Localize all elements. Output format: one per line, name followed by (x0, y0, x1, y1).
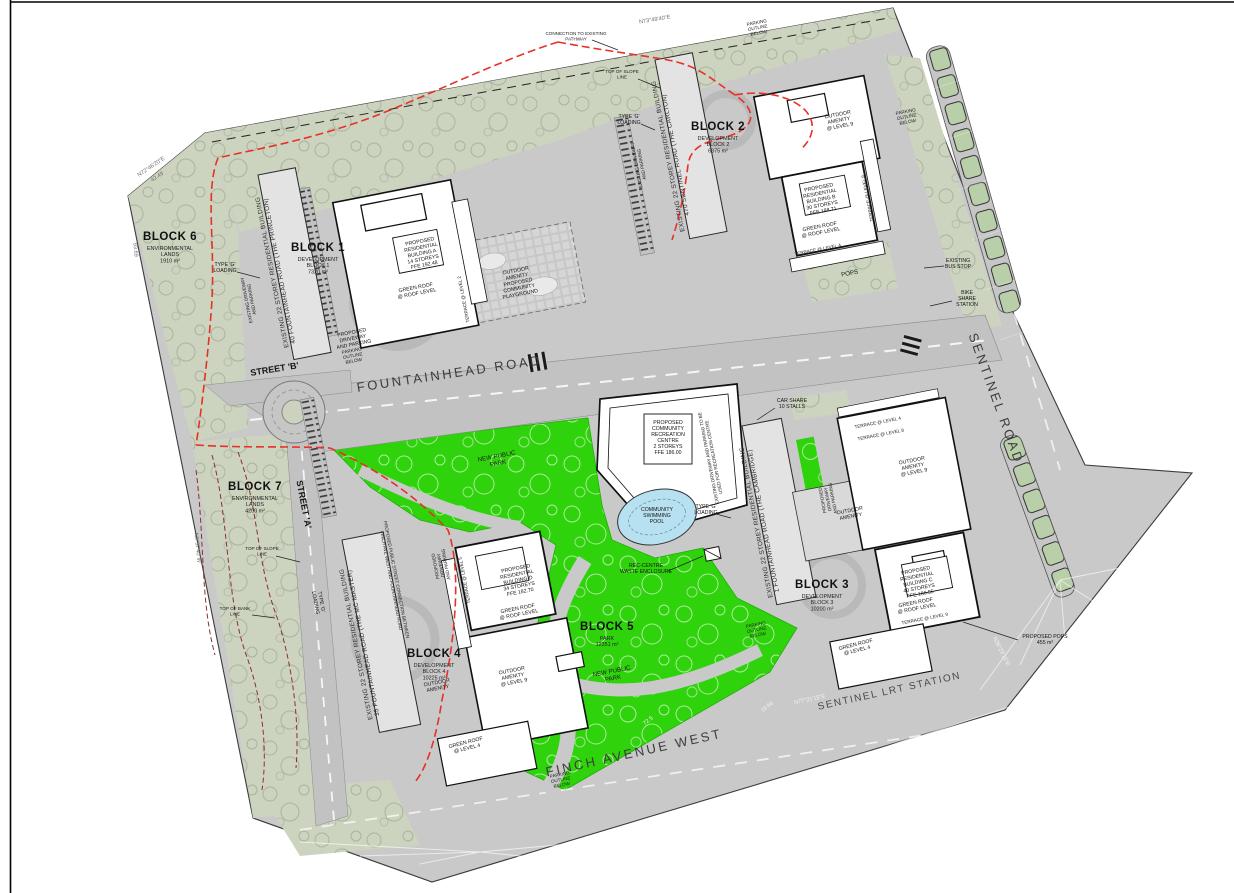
label-block7-title: BLOCK 7 (228, 481, 282, 493)
label-car-share: CAR SHARE10 STALLS (777, 398, 808, 410)
label-type-g-1: TYPE 'G'LOADING (213, 262, 236, 274)
label-block6-title: BLOCK 6 (143, 231, 197, 243)
label-bus-stop: EXISTINGBUS STOP (945, 258, 972, 270)
label-type-g-3: TYPE 'G'LOADING (694, 504, 717, 516)
site-plan-svg: FOUNTAINHEAD ROAD SENTINEL ROAD FINCH AV… (0, 0, 1234, 893)
waste-enclosure-structure (704, 547, 721, 562)
label-block3-title: BLOCK 3 (795, 579, 849, 591)
label-type-g-2: TYPE 'G'LOADING (617, 114, 640, 126)
label-rec-centre: PROPOSEDCOMMUNITYRECREATIONCENTRE2 STORE… (651, 420, 685, 456)
label-block5-title: BLOCK 5 (580, 621, 634, 633)
label-block4-title: BLOCK 4 (407, 648, 461, 660)
label-block1-title: BLOCK 1 (291, 242, 345, 254)
label-block2-title: BLOCK 2 (691, 121, 745, 133)
site-plan-sheet: { "drawing": { "roads": { "fountainhead"… (0, 0, 1234, 893)
